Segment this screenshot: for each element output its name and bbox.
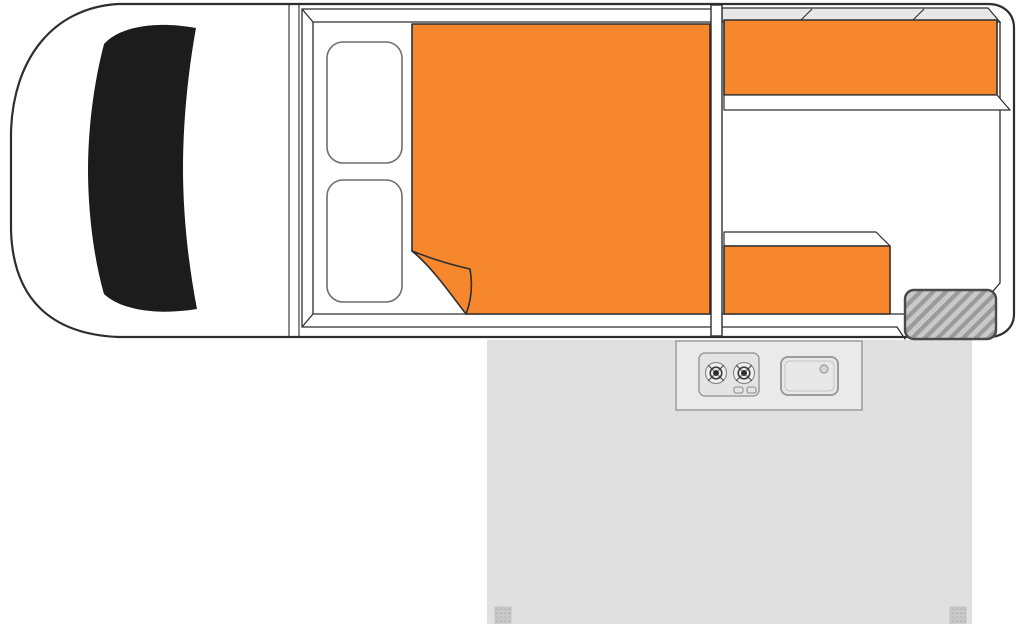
floorplan-stage — [0, 0, 1024, 628]
campervan-floorplan — [0, 0, 1024, 628]
stove-burner-left-icon — [706, 363, 727, 384]
windshield — [88, 25, 197, 312]
rear-bench-upper-edge — [724, 95, 1010, 110]
rear-bench-upper — [724, 20, 997, 95]
cab-seat-upper — [327, 42, 402, 163]
slide-out-kitchen — [676, 341, 862, 410]
annex-peg-left — [495, 607, 511, 623]
cab-seat-lower — [327, 180, 402, 302]
rear-bench-lower — [724, 246, 890, 314]
stove-burner-right-icon — [734, 363, 755, 384]
rear-bench-lower-edge — [724, 232, 890, 246]
partition-wall — [711, 5, 722, 336]
sink — [781, 357, 838, 395]
annex-peg-right — [950, 607, 966, 623]
sink-drain — [820, 365, 828, 373]
hatched-storage-unit — [905, 290, 996, 339]
